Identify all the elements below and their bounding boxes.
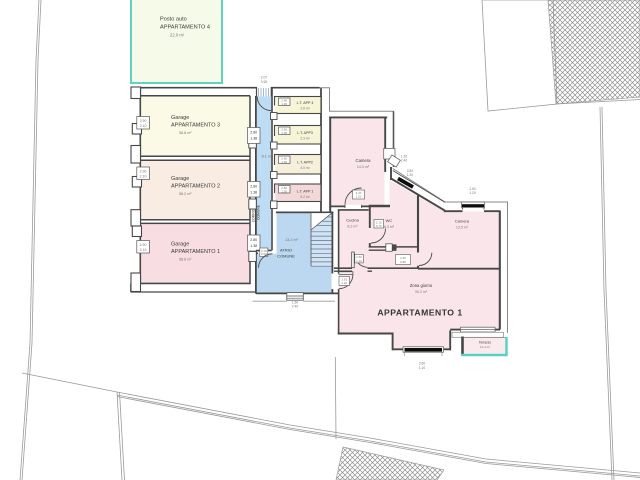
svg-text:2.80: 2.80 bbox=[250, 238, 257, 242]
svg-text:Zona giorno: Zona giorno bbox=[410, 283, 433, 288]
svg-text:58.6 m²: 58.6 m² bbox=[179, 258, 192, 262]
svg-text:8.1 m²: 8.1 m² bbox=[262, 155, 273, 159]
svg-text:2.40: 2.40 bbox=[401, 159, 407, 163]
svg-text:Camera: Camera bbox=[455, 219, 470, 224]
svg-text:2.90: 2.90 bbox=[140, 243, 147, 247]
svg-text:1.20: 1.20 bbox=[469, 191, 476, 195]
svg-text:L.T. APP 1: L.T. APP 1 bbox=[297, 190, 314, 194]
svg-text:0.80: 0.80 bbox=[400, 260, 406, 264]
svg-text:1.30: 1.30 bbox=[281, 189, 287, 193]
svg-text:APPARTAMENTO 4: APPARTAMENTO 4 bbox=[160, 25, 210, 31]
svg-text:APPARTAMENTO 1: APPARTAMENTO 1 bbox=[377, 308, 462, 318]
svg-text:2.10: 2.10 bbox=[140, 124, 147, 128]
svg-text:COMUNE: COMUNE bbox=[277, 254, 295, 259]
svg-text:14.3 m²: 14.3 m² bbox=[357, 165, 370, 169]
svg-text:30.2 m²: 30.2 m² bbox=[415, 290, 428, 294]
svg-text:APPARTAMENTO 3: APPARTAMENTO 3 bbox=[171, 123, 220, 129]
svg-text:Garage: Garage bbox=[171, 176, 189, 182]
svg-text:1.38: 1.38 bbox=[250, 191, 257, 195]
svg-text:2.07: 2.07 bbox=[261, 76, 268, 80]
svg-text:1.30: 1.30 bbox=[281, 160, 287, 164]
svg-text:0.70: 0.70 bbox=[376, 224, 382, 228]
svg-text:COMUNE: COMUNE bbox=[257, 204, 261, 220]
svg-text:2.3 m²: 2.3 m² bbox=[300, 137, 310, 141]
svg-text:2.80: 2.80 bbox=[250, 131, 257, 135]
svg-text:APPARTAMENTO 2: APPARTAMENTO 2 bbox=[171, 184, 220, 190]
svg-text:Garage: Garage bbox=[171, 242, 189, 248]
svg-text:1.30: 1.30 bbox=[281, 102, 287, 106]
svg-text:2.8 m²: 2.8 m² bbox=[300, 107, 310, 111]
svg-text:0.90: 0.90 bbox=[261, 80, 268, 84]
svg-text:22.0 m²: 22.0 m² bbox=[170, 33, 185, 38]
svg-text:4.0 m²: 4.0 m² bbox=[300, 166, 310, 170]
svg-text:2.80: 2.80 bbox=[250, 185, 257, 189]
svg-text:58.8 m²: 58.8 m² bbox=[179, 131, 192, 135]
svg-text:Cucina: Cucina bbox=[346, 218, 359, 223]
svg-text:ATRIO: ATRIO bbox=[280, 248, 292, 253]
svg-text:13.5 m²: 13.5 m² bbox=[456, 226, 469, 230]
svg-text:12.4 m²: 12.4 m² bbox=[480, 345, 490, 349]
svg-text:2.90: 2.90 bbox=[140, 119, 147, 123]
svg-text:5.2 m²: 5.2 m² bbox=[300, 195, 310, 199]
svg-text:2.10: 2.10 bbox=[140, 248, 147, 252]
svg-text:6.3 m²: 6.3 m² bbox=[384, 225, 395, 229]
svg-text:1.10: 1.10 bbox=[356, 259, 362, 263]
svg-text:1.20: 1.20 bbox=[407, 173, 413, 177]
svg-text:1.20: 1.20 bbox=[356, 195, 362, 199]
svg-text:13.2 m²: 13.2 m² bbox=[285, 238, 299, 242]
svg-text:L.T. APP 4: L.T. APP 4 bbox=[297, 101, 314, 105]
svg-text:2.40: 2.40 bbox=[292, 305, 299, 309]
svg-text:1.10: 1.10 bbox=[419, 366, 426, 370]
svg-text:L.T. APP2: L.T. APP2 bbox=[297, 161, 313, 165]
svg-text:WC: WC bbox=[386, 218, 393, 223]
svg-text:2.90: 2.90 bbox=[140, 170, 147, 174]
svg-text:APPARTAMENTO 1: APPARTAMENTO 1 bbox=[171, 249, 220, 255]
svg-text:1.38: 1.38 bbox=[250, 137, 257, 141]
svg-text:1.38: 1.38 bbox=[250, 244, 257, 248]
svg-text:Garage: Garage bbox=[171, 115, 189, 121]
svg-text:1.20: 1.20 bbox=[341, 281, 347, 285]
svg-text:Posto auto: Posto auto bbox=[160, 17, 187, 23]
svg-text:Camera: Camera bbox=[356, 158, 372, 163]
svg-text:8.2 m²: 8.2 m² bbox=[347, 225, 358, 229]
svg-text:1.30: 1.30 bbox=[281, 131, 287, 135]
svg-text:56.2 m²: 56.2 m² bbox=[179, 192, 192, 196]
svg-text:2.10: 2.10 bbox=[140, 175, 147, 179]
svg-text:L.T. APP3: L.T. APP3 bbox=[297, 131, 313, 135]
